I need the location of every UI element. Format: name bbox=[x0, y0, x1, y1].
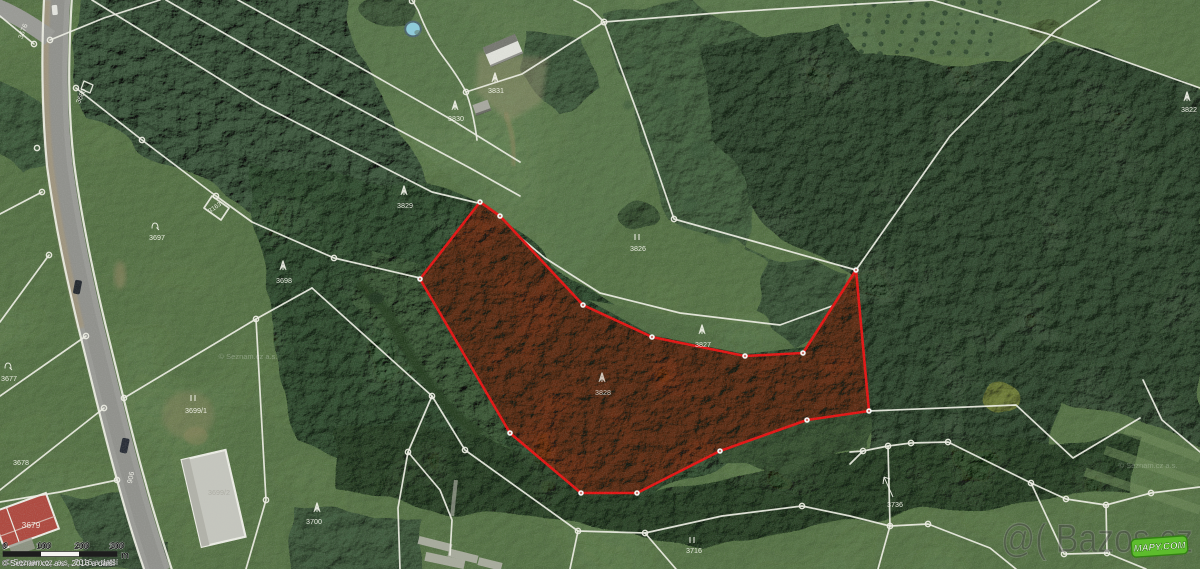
svg-text:3828: 3828 bbox=[595, 388, 611, 397]
svg-text:3697: 3697 bbox=[149, 233, 165, 242]
svg-text:3826: 3826 bbox=[630, 244, 646, 253]
svg-text:3677: 3677 bbox=[1, 374, 17, 383]
svg-text:0: 0 bbox=[3, 540, 8, 550]
svg-text:200: 200 bbox=[75, 540, 90, 550]
svg-text:3822: 3822 bbox=[1181, 105, 1197, 114]
svg-text:© Seznam.cz, a.s., 2016 a dalš: © Seznam.cz, a.s., 2016 a další bbox=[5, 558, 119, 567]
svg-text:3716: 3716 bbox=[686, 546, 702, 555]
svg-text:© Seznam.cz a.s.: © Seznam.cz a.s. bbox=[219, 352, 278, 361]
svg-text:3698: 3698 bbox=[276, 276, 292, 285]
svg-text:© Seznam.cz a.s.: © Seznam.cz a.s. bbox=[1119, 461, 1178, 470]
svg-text:3736: 3736 bbox=[887, 500, 903, 509]
svg-text:3830: 3830 bbox=[448, 114, 464, 123]
svg-text:3699/1: 3699/1 bbox=[185, 406, 207, 415]
svg-text:m: m bbox=[121, 550, 129, 560]
svg-text:3679: 3679 bbox=[22, 520, 41, 530]
svg-text:3827: 3827 bbox=[695, 340, 711, 349]
svg-text:100: 100 bbox=[37, 540, 52, 550]
svg-text:3829: 3829 bbox=[397, 201, 413, 210]
svg-text:3678: 3678 bbox=[13, 458, 29, 467]
svg-text:3700: 3700 bbox=[306, 517, 322, 526]
svg-text:3699/2: 3699/2 bbox=[208, 488, 230, 497]
svg-text:3831: 3831 bbox=[488, 86, 504, 95]
svg-text:300: 300 bbox=[110, 540, 125, 550]
